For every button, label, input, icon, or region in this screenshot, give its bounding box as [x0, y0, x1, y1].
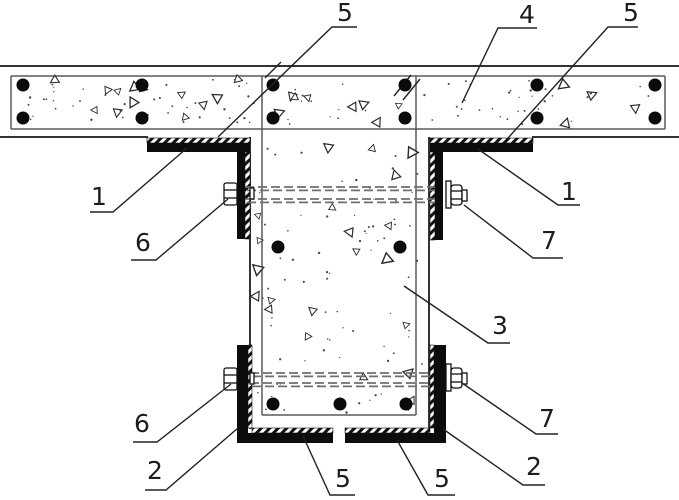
aggregate-triangle	[329, 204, 338, 213]
aggregate-speck	[571, 121, 572, 122]
aggregate-speck	[354, 215, 355, 216]
aggregate-speck	[247, 95, 249, 97]
aggregate-speck	[411, 192, 412, 193]
channel-right-wall-weld-hatch	[430, 345, 434, 428]
aggregate-triangle	[182, 113, 190, 121]
callout-label: 5	[337, 0, 353, 25]
aggregate-speck	[456, 106, 458, 108]
aggregate-speck	[79, 100, 81, 102]
aggregate-speck	[387, 360, 389, 362]
aggregate-speck	[341, 180, 343, 182]
aggregate-speck	[373, 199, 374, 200]
aggregate-speck	[394, 224, 396, 226]
callout-label: 5	[434, 466, 450, 491]
tie-rods	[245, 187, 435, 386]
aggregate-speck	[507, 118, 509, 120]
aggregate-speck	[323, 349, 325, 351]
aggregate-speck	[538, 108, 540, 110]
aggregate-speck	[236, 121, 238, 123]
aggregate-triangle	[303, 93, 311, 102]
aggregate-speck	[544, 100, 546, 102]
aggregate-speck	[365, 110, 367, 112]
aggregate-speck	[510, 90, 512, 92]
aggregate-speck	[55, 108, 57, 110]
channel-bottom-weld-hatch-right	[345, 428, 430, 433]
aggregate-speck	[289, 123, 291, 125]
aggregate-speck	[457, 115, 459, 117]
aggregate-speck	[383, 346, 384, 347]
callout-label: 1	[561, 179, 577, 204]
aggregate-speck	[287, 119, 288, 120]
aggregate-speck	[552, 95, 554, 97]
channel-bottom-weld-hatch-left	[252, 428, 333, 433]
aggregate-speck	[120, 110, 122, 112]
rebar-tick-marks	[265, 62, 420, 100]
aggregate-triangle	[631, 105, 641, 114]
aggregate-speck	[590, 92, 592, 94]
aggregate-speck	[262, 297, 263, 298]
aggregate-triangle	[114, 86, 123, 95]
aggregate-speck	[370, 249, 371, 250]
aggregate-triangle	[302, 333, 312, 342]
aggregate-speck	[183, 121, 185, 123]
aggregate-speck	[528, 80, 530, 82]
aggregate-triangle	[321, 140, 334, 153]
callout-label: 5	[335, 466, 351, 491]
aggregate-speck	[318, 252, 320, 254]
aggregate-triangle	[102, 86, 112, 96]
aggregate-speck	[392, 167, 394, 169]
aggregate-speck	[364, 230, 366, 232]
aggregate-speck	[492, 108, 494, 110]
aggregate-triangle	[403, 320, 411, 328]
aggregate-speck	[326, 278, 328, 280]
steel-plates	[147, 138, 533, 443]
aggregate-speck	[238, 85, 240, 87]
aggregate-speck	[159, 97, 161, 99]
callout-label: 2	[526, 454, 542, 479]
aggregate-speck	[586, 96, 588, 98]
aggregate-speck	[421, 363, 423, 365]
aggregate-speck	[416, 173, 418, 175]
aggregate-speck	[448, 83, 450, 85]
aggregate-speck	[300, 152, 302, 154]
aggregate-speck	[267, 148, 269, 150]
aggregate-speck	[195, 102, 197, 104]
aggregate-speck	[51, 84, 53, 86]
aggregate-speck	[249, 122, 250, 123]
aggregate-speck	[53, 87, 54, 88]
aggregate-triangle	[199, 101, 209, 110]
aggregate-triangle	[587, 88, 598, 100]
aggregate-speck	[408, 276, 410, 278]
callout-label: 3	[492, 313, 508, 338]
aggregate-speck	[287, 230, 289, 232]
aggregate-speck	[518, 97, 519, 98]
aggregate-speck	[302, 95, 304, 97]
aggregate-speck	[345, 411, 347, 413]
callout-label: 1	[91, 184, 107, 209]
aggregate-speck	[153, 98, 155, 100]
aggregate-speck	[395, 155, 397, 157]
aggregate-speck	[377, 240, 379, 242]
aggregate-speck	[246, 83, 247, 84]
aggregate-speck	[355, 179, 357, 181]
aggregate-speck	[243, 117, 245, 119]
drawing-canvas: 54516173625527	[0, 0, 679, 500]
aggregate-speck	[279, 358, 281, 360]
aggregate-speck	[257, 392, 259, 394]
callout-leader-line	[508, 27, 638, 138]
aggregate-speck	[271, 396, 272, 397]
aggregate-speck	[325, 311, 327, 313]
aggregate-speck	[29, 96, 31, 98]
aggregate-speck	[409, 225, 411, 227]
aggregate-speck	[368, 226, 370, 228]
aggregate-speck	[294, 89, 296, 91]
callout-label: 2	[147, 458, 163, 483]
aggregate-speck	[199, 116, 201, 118]
upper-right-nut	[446, 181, 467, 208]
aggregate-triangle	[379, 253, 394, 268]
aggregate-triangle	[368, 143, 377, 151]
aggregate-speck	[359, 240, 361, 242]
aggregate-speck	[530, 89, 532, 91]
channel-left-wall	[237, 345, 248, 443]
aggregate-speck	[270, 325, 272, 327]
aggregate-speck	[423, 94, 425, 96]
aggregate-speck	[32, 116, 33, 117]
aggregate-speck	[508, 91, 510, 93]
aggregate-triangle	[48, 75, 59, 86]
callout-label: 6	[134, 411, 150, 436]
aggregate-speck	[372, 225, 374, 227]
aggregate-speck	[352, 330, 354, 332]
aggregate-speck	[28, 104, 30, 106]
aggregate-triangle	[351, 246, 360, 255]
aggregate-triangle	[264, 305, 272, 313]
aggregate-triangle	[250, 289, 263, 301]
aggregate-speck	[369, 400, 370, 401]
aggregate-speck	[390, 313, 391, 314]
aggregate-speck	[517, 111, 519, 113]
aggregate-speck	[122, 117, 124, 119]
aggregate-speck	[124, 103, 126, 105]
aggregate-speck	[300, 215, 301, 216]
aggregate-triangle	[254, 211, 261, 219]
right-angle-leg-weld-hatch	[430, 152, 435, 240]
left-angle-leg	[237, 152, 245, 239]
aggregate-speck	[342, 327, 343, 328]
aggregate-speck	[647, 95, 649, 97]
aggregate-speck	[284, 279, 286, 281]
aggregate-triangle	[555, 79, 569, 93]
right-angle-flange-weld-hatch	[430, 138, 533, 143]
aggregate-speck	[545, 88, 547, 90]
aggregate-speck	[283, 409, 285, 411]
aggregate-speck	[264, 224, 266, 226]
aggregate-speck	[336, 311, 337, 312]
aggregate-speck	[383, 237, 385, 239]
aggregate-speck	[276, 384, 277, 385]
aggregate-speck	[381, 393, 382, 394]
aggregate-triangle	[306, 304, 317, 315]
callout-label: 5	[623, 0, 639, 25]
aggregate-speck	[500, 116, 501, 117]
aggregate-speck	[46, 98, 48, 100]
aggregate-speck	[639, 86, 641, 88]
aggregate-speck	[265, 409, 267, 411]
aggregate-speck	[337, 117, 339, 119]
aggregate-speck	[395, 200, 397, 202]
aggregate-triangle	[344, 227, 354, 237]
aggregate-triangle	[389, 169, 400, 180]
aggregate-speck	[416, 260, 418, 262]
left-angle-flange	[147, 143, 250, 152]
aggregate-speck	[329, 339, 330, 340]
aggregate-speck	[304, 360, 305, 361]
aggregate-speck	[310, 100, 312, 102]
aggregate-speck	[274, 154, 276, 156]
aggregate-speck	[327, 338, 329, 340]
aggregate-speck	[82, 88, 83, 89]
aggregate-speck	[479, 109, 481, 111]
aggregate-triangle	[372, 115, 384, 127]
aggregate-triangle	[560, 117, 572, 128]
aggregate-triangle	[348, 102, 357, 111]
aggregate-speck	[280, 257, 282, 259]
aggregate-triangle	[112, 109, 122, 118]
channel-bottom-plate-right	[345, 433, 446, 443]
aggregate-speck	[524, 110, 526, 112]
channel-right-wall	[434, 345, 446, 443]
aggregate-speck	[303, 281, 305, 283]
aggregate-speck	[234, 79, 236, 81]
aggregate-speck	[358, 402, 360, 404]
aggregate-speck	[43, 98, 45, 100]
aggregate-speck	[53, 100, 54, 101]
aggregate-speck	[338, 109, 339, 110]
left-angle-leg-weld-hatch	[245, 152, 250, 239]
callout-label: 7	[539, 406, 555, 431]
channel-bottom-plate-left	[237, 433, 333, 443]
aggregate-speck	[339, 357, 340, 358]
aggregate-speck	[267, 288, 269, 290]
right-angle-leg	[435, 152, 443, 240]
aggregate-speck	[301, 101, 302, 102]
callout-label: 7	[541, 228, 557, 253]
callout-leader-line	[218, 27, 357, 137]
aggregate-speck	[326, 215, 328, 217]
aggregate-triangle	[384, 222, 391, 230]
aggregate-speck	[408, 330, 410, 332]
aggregate-speck	[104, 94, 106, 96]
aggregate-triangle	[178, 89, 188, 99]
aggregate-triangle	[360, 373, 370, 383]
callout-label: 4	[519, 2, 535, 27]
concrete-outlines	[0, 66, 679, 429]
aggregate-speck	[90, 119, 92, 121]
aggregate-triangle	[268, 296, 276, 304]
aggregate-speck	[72, 105, 74, 107]
aggregate-speck	[465, 80, 467, 82]
aggregate-speck	[532, 95, 533, 96]
aggregate-speck	[329, 273, 330, 274]
aggregate-speck	[30, 119, 31, 120]
aggregate-speck	[330, 116, 331, 117]
aggregate-speck	[223, 108, 225, 110]
aggregate-triangle	[359, 98, 371, 110]
aggregate-speck	[393, 352, 395, 354]
aggregate-triangle	[91, 107, 98, 114]
aggregate-speck	[326, 271, 328, 273]
aggregate-speck	[413, 396, 414, 397]
aggregate-speck	[408, 336, 409, 337]
aggregate-speck	[366, 233, 367, 234]
aggregate-speck	[186, 107, 187, 108]
aggregate-speck	[167, 112, 169, 114]
aggregate-speck	[292, 259, 294, 261]
aggregate-speck	[461, 108, 463, 110]
aggregate-triangle	[126, 94, 140, 107]
callout-label: 6	[135, 230, 151, 255]
aggregate-triangle	[395, 101, 403, 109]
aggregate-speck	[259, 192, 260, 193]
channel-left-wall-weld-hatch	[248, 345, 252, 428]
aggregate-speck	[53, 91, 54, 92]
aggregate-speck	[431, 119, 433, 121]
lower-right-nut	[446, 364, 467, 391]
aggregate-speck	[171, 105, 173, 107]
aggregate-speck	[290, 92, 292, 94]
aggregate-speck	[342, 83, 344, 85]
aggregate-speck	[229, 117, 231, 119]
aggregate-speck	[374, 394, 376, 396]
aggregate-speck	[394, 219, 396, 221]
left-angle-flange-weld-hatch	[147, 138, 250, 143]
structural-drawing	[0, 0, 679, 500]
aggregate-triangle	[210, 90, 223, 103]
aggregate-speck	[165, 84, 167, 86]
aggregate-speck	[271, 317, 273, 319]
callout-leaders	[90, 27, 638, 495]
aggregate-speck	[212, 79, 214, 81]
